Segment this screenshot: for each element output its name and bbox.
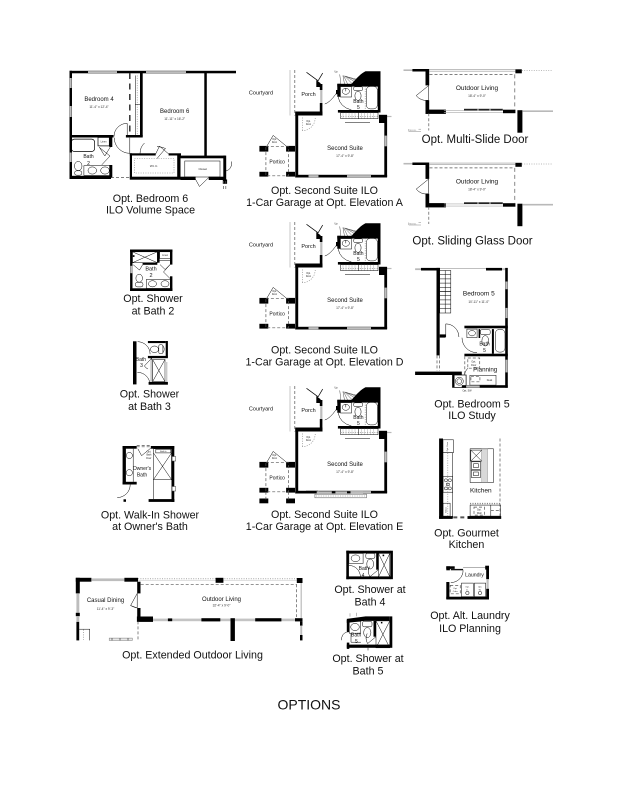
svg-text:Opt. Second Suite ILO: Opt. Second Suite ILO [271, 345, 378, 357]
svg-text:1-Car Garage at Opt. Elevation: 1-Car Garage at Opt. Elevation D [245, 357, 403, 369]
svg-text:W.I.C.: W.I.C. [150, 164, 158, 168]
svg-text:ILO Volume Space: ILO Volume Space [106, 205, 195, 217]
svg-text:Opt. Shower: Opt. Shower [120, 389, 180, 401]
svg-text:Wall: Wall [477, 512, 482, 515]
svg-text:Owner's: Owner's [133, 466, 152, 472]
svg-text:Built-In: Built-In [160, 450, 166, 453]
svg-text:Linen: Linen [162, 254, 169, 257]
svg-text:Bath: Bath [359, 566, 370, 572]
svg-text:Opt. Bedroom 5: Opt. Bedroom 5 [434, 399, 510, 411]
svg-text:Kitchen: Kitchen [470, 488, 492, 495]
svg-text:Opt.: Opt. [465, 585, 469, 588]
svg-text:Opt. SW: Opt. SW [462, 389, 472, 392]
svg-text:Bedroom 4: Bedroom 4 [84, 97, 114, 103]
svg-text:Opt.: Opt. [478, 585, 482, 588]
svg-text:11'-11" x 16'-2": 11'-11" x 16'-2" [164, 117, 185, 121]
svg-text:Opt. Alt. Laundry: Opt. Alt. Laundry [430, 610, 510, 622]
svg-text:Opt. Walk-In Shower: Opt. Walk-In Shower [101, 510, 200, 522]
svg-text:5: 5 [355, 639, 358, 645]
svg-text:Laundry: Laundry [465, 573, 484, 579]
svg-text:Bedroom 6: Bedroom 6 [160, 109, 190, 115]
svg-text:Opt. Second Suite ILO: Opt. Second Suite ILO [271, 185, 378, 197]
svg-text:Opt. Sliding Glass Door: Opt. Sliding Glass Door [412, 236, 532, 248]
svg-text:Bath: Bath [83, 154, 94, 160]
svg-text:3: 3 [140, 363, 143, 369]
svg-text:Cabs: Cabs [453, 591, 458, 593]
svg-text:Desk: Desk [487, 379, 493, 382]
svg-text:Opt. Shower: Opt. Shower [123, 293, 183, 305]
svg-text:Opt. Shower at: Opt. Shower at [334, 584, 405, 596]
svg-text:Bath: Bath [145, 266, 156, 272]
svg-text:5: 5 [483, 348, 486, 354]
svg-text:Opt.: Opt. [453, 587, 457, 590]
svg-text:Door: Door [146, 457, 151, 460]
svg-text:at Owner's Bath: at Owner's Bath [112, 521, 188, 533]
svg-text:at Bath 3: at Bath 3 [128, 401, 171, 413]
svg-text:1-Car Garage at Opt. Elevation: 1-Car Garage at Opt. Elevation A [246, 197, 404, 209]
svg-text:Planning: Planning [473, 366, 498, 373]
svg-text:Bath 4: Bath 4 [355, 597, 386, 609]
svg-text:Bath: Bath [137, 473, 148, 479]
svg-text:Bath 5: Bath 5 [353, 665, 384, 677]
svg-text:OPTIONS: OPTIONS [277, 697, 340, 713]
svg-text:Opt. Bedroom 6: Opt. Bedroom 6 [113, 193, 189, 205]
svg-text:32'-4" x 9'-0": 32'-4" x 9'-0" [213, 604, 231, 608]
svg-text:Opt. Second Suite ILO: Opt. Second Suite ILO [271, 509, 378, 521]
svg-text:Linen: Linen [101, 141, 108, 144]
svg-text:11'-4" x 9'-3": 11'-4" x 9'-3" [97, 607, 115, 611]
svg-text:Opt. Shower at: Opt. Shower at [332, 653, 403, 665]
svg-text:ILO Planning: ILO Planning [439, 623, 501, 635]
svg-text:Bath: Bath [479, 342, 490, 348]
svg-text:Outdoor Living: Outdoor Living [202, 597, 241, 603]
svg-text:Bath: Bath [351, 632, 362, 638]
svg-text:Opt. Oven: Opt. Oven [446, 441, 449, 451]
svg-text:Bedroom 5: Bedroom 5 [463, 291, 495, 298]
svg-text:at Bath 2: at Bath 2 [132, 305, 175, 317]
svg-text:ILO Study: ILO Study [448, 410, 496, 422]
svg-text:1-Car Garage at Opt. Elevation: 1-Car Garage at Opt. Elevation E [246, 521, 403, 533]
svg-text:Opt. Multi-Slide Door: Opt. Multi-Slide Door [422, 134, 529, 146]
svg-text:Opt. Extended Outdoor Living: Opt. Extended Outdoor Living [122, 649, 263, 661]
svg-text:Kitchen: Kitchen [449, 539, 485, 551]
svg-text:2: 2 [149, 273, 152, 279]
svg-text:Micro: Micro [444, 507, 447, 513]
svg-text:10'-11" x 11'-0": 10'-11" x 11'-0" [468, 300, 489, 304]
svg-text:Closet: Closet [198, 167, 207, 171]
svg-text:Opt. Gourmet: Opt. Gourmet [434, 528, 499, 540]
svg-text:Casual Dining: Casual Dining [87, 598, 124, 604]
svg-text:11'-4" x 12'-4": 11'-4" x 12'-4" [89, 105, 108, 109]
